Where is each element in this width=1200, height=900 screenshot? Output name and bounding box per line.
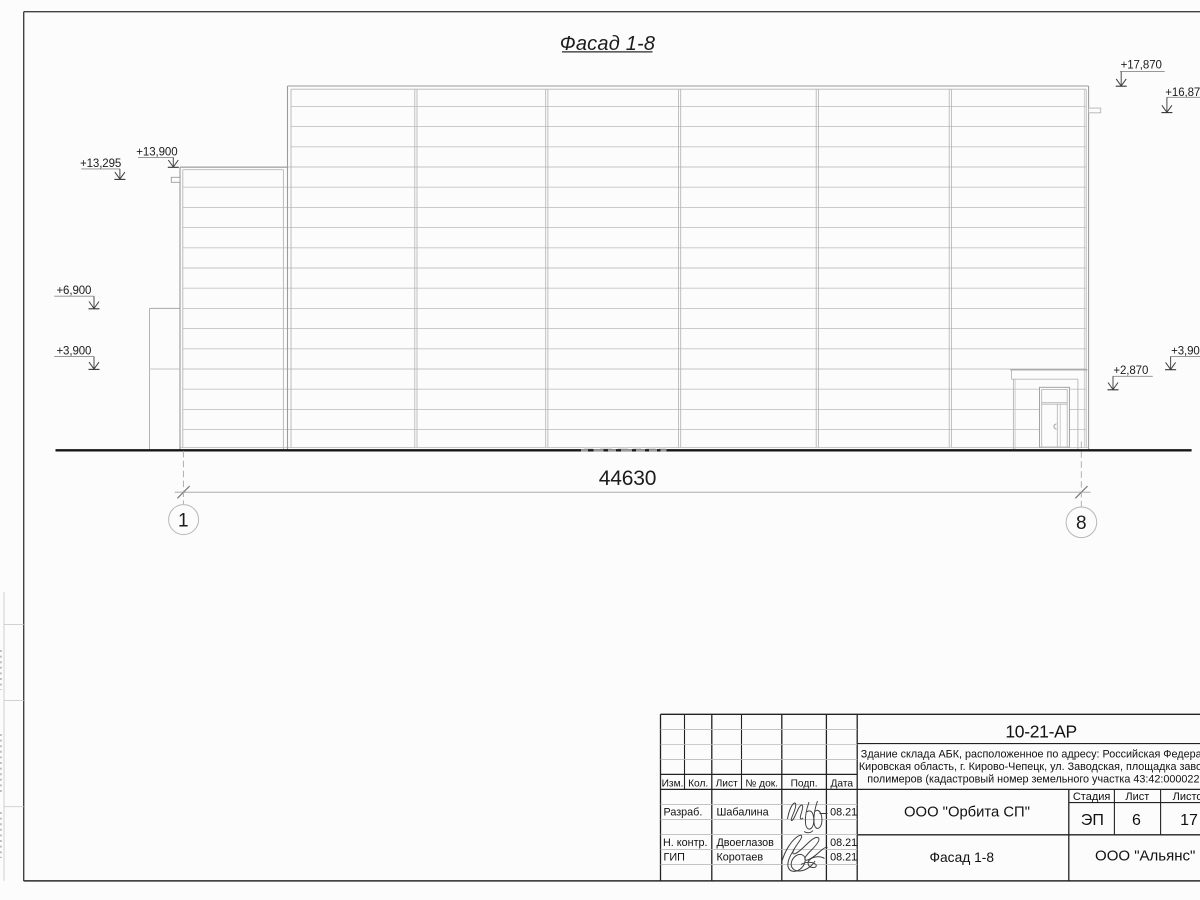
svg-text:Подп.: Подп. xyxy=(791,779,818,790)
svg-text:Лист: Лист xyxy=(716,779,738,790)
svg-text:08.21: 08.21 xyxy=(830,807,857,819)
svg-text:1: 1 xyxy=(178,510,189,531)
svg-text:+13,295: +13,295 xyxy=(80,158,121,170)
svg-text:ООО "Орбита СП": ООО "Орбита СП" xyxy=(904,804,1030,820)
svg-text:Кол.: Кол. xyxy=(688,779,708,790)
svg-text:10-21-АР: 10-21-АР xyxy=(1005,721,1077,741)
svg-text:Коротаев: Коротаев xyxy=(717,852,764,864)
svg-text:Листов: Листов xyxy=(1173,791,1200,803)
svg-text:44630: 44630 xyxy=(599,467,656,490)
svg-text:Фасад 1-8: Фасад 1-8 xyxy=(930,850,995,865)
svg-text:Двоеглазов: Двоеглазов xyxy=(717,837,775,849)
svg-text:+17,870: +17,870 xyxy=(1121,59,1162,71)
svg-text:Н. контр.: Н. контр. xyxy=(663,837,708,849)
svg-text:ЭП: ЭП xyxy=(1081,812,1104,829)
svg-text:№ док.: № док. xyxy=(745,779,778,790)
svg-text:Лист: Лист xyxy=(1125,791,1149,803)
svg-text:ООО "Альянс": ООО "Альянс" xyxy=(1095,848,1195,865)
svg-text:ГИП: ГИП xyxy=(664,852,685,864)
svg-text:17: 17 xyxy=(1180,812,1198,829)
svg-text:+3,900: +3,900 xyxy=(56,346,91,358)
svg-text:Дата: Дата xyxy=(831,779,854,790)
svg-text:Здание склада АБК, расположенн: Здание склада АБК, расположенное по адре… xyxy=(861,748,1200,760)
svg-text:+2,870: +2,870 xyxy=(1113,365,1148,377)
svg-text:+13,900: +13,900 xyxy=(136,147,177,159)
svg-text:08.21: 08.21 xyxy=(830,852,857,864)
svg-text:+3,900: +3,900 xyxy=(1171,346,1200,358)
svg-text:6: 6 xyxy=(1132,812,1141,829)
svg-text:Изм.: Изм. xyxy=(662,779,684,790)
svg-text:+6,900: +6,900 xyxy=(56,285,91,297)
svg-text:08.21: 08.21 xyxy=(830,837,857,849)
svg-text:Кировская область, г. Кирово-Ч: Кировская область, г. Кирово-Чепецк, ул.… xyxy=(859,761,1200,773)
svg-text:Разраб.: Разраб. xyxy=(664,807,703,819)
svg-text:Стадия: Стадия xyxy=(1073,791,1111,803)
svg-text:Шабалина: Шабалина xyxy=(717,807,769,819)
svg-text:8: 8 xyxy=(1076,513,1087,534)
svg-text:полимеров (кадастровый номер з: полимеров (кадастровый номер земельного … xyxy=(867,773,1200,785)
